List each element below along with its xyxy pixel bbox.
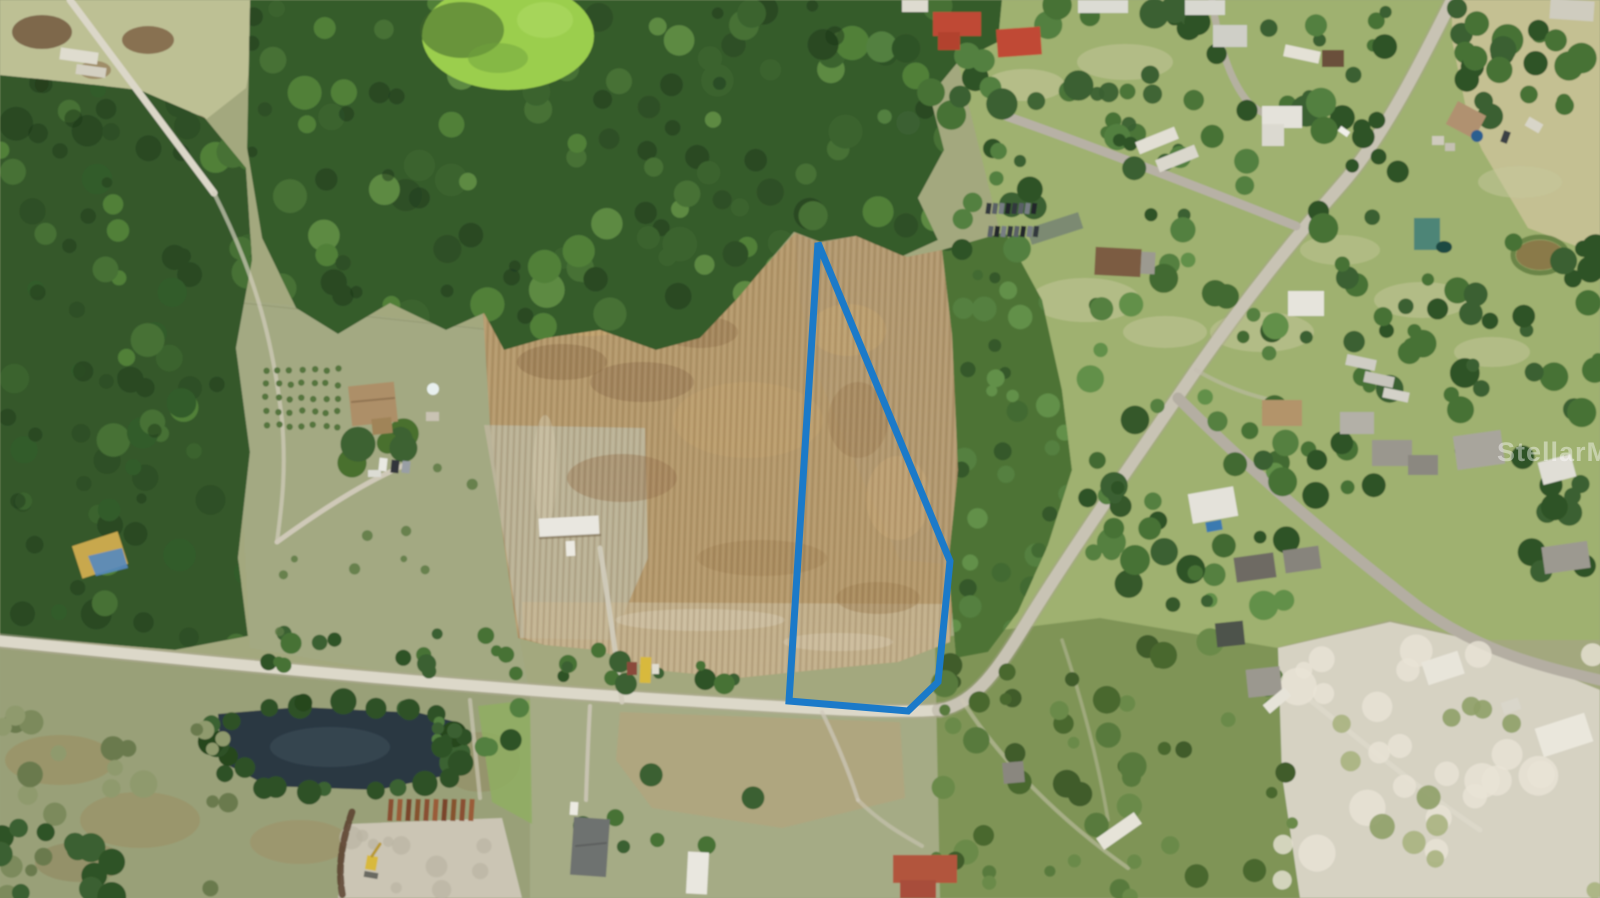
12: [1422, 273, 1434, 285]
buildings: [566, 541, 576, 556]
75: [0, 159, 26, 185]
42: [1077, 365, 1104, 392]
ponds: [412, 771, 437, 796]
6: [341, 427, 376, 462]
buildings: [1002, 761, 1025, 784]
12: [1201, 595, 1213, 607]
75: [117, 368, 136, 387]
14: [972, 49, 995, 72]
10: [1308, 213, 1338, 243]
25: [1519, 756, 1559, 796]
10: [1374, 307, 1393, 326]
12: [714, 673, 735, 694]
75: [97, 423, 131, 457]
10: [952, 239, 973, 260]
75: [28, 428, 42, 442]
10: [1306, 88, 1336, 118]
10: [1380, 6, 1392, 18]
buildings: [426, 412, 439, 421]
buildings: [390, 460, 399, 474]
10: [476, 838, 491, 853]
7: [742, 786, 765, 809]
12: [1512, 305, 1535, 328]
75: [209, 377, 225, 393]
14: [1170, 217, 1195, 242]
120: [583, 267, 607, 291]
25: [206, 795, 219, 808]
25: [1368, 742, 1390, 764]
25: [1435, 762, 1460, 787]
12: [562, 661, 573, 672]
18: [133, 612, 154, 633]
45: [960, 362, 975, 377]
42: [1273, 590, 1294, 611]
10: [1398, 341, 1421, 364]
55: [1221, 712, 1236, 727]
10: [426, 856, 448, 878]
10: [990, 143, 1007, 160]
75: [69, 302, 85, 318]
55: [1050, 701, 1069, 720]
red-roof-house: [996, 26, 1042, 57]
12: [1138, 517, 1161, 540]
south-scrub: [286, 424, 292, 430]
14: [986, 88, 1017, 119]
south-scrub: [324, 396, 330, 402]
10: [510, 698, 530, 718]
south-scrub: [310, 422, 316, 428]
42: [1089, 452, 1106, 469]
55: [1119, 752, 1147, 780]
12: [1462, 697, 1481, 716]
10: [1017, 177, 1043, 203]
55: [1119, 695, 1136, 712]
25: [1309, 646, 1335, 672]
south-scrub: [287, 396, 293, 402]
55: [1286, 817, 1298, 829]
18: [70, 580, 85, 595]
south-scrub: [276, 394, 282, 400]
buildings: [1432, 136, 1444, 145]
25: [807, 0, 819, 12]
12: [1340, 751, 1360, 771]
14: [1235, 176, 1254, 195]
55: [963, 727, 990, 754]
75: [99, 374, 114, 389]
12: [1402, 831, 1425, 854]
buildings: [1340, 412, 1374, 434]
pool: [1471, 130, 1483, 142]
120: [713, 190, 732, 209]
14: [917, 78, 945, 106]
12: [1505, 233, 1523, 251]
12: [615, 673, 637, 695]
16: [1545, 29, 1567, 51]
42: [1214, 284, 1239, 309]
25: [1393, 775, 1416, 798]
base-ground: [935, 618, 1300, 898]
ponds: [253, 778, 275, 800]
ponds: [270, 727, 390, 767]
120: [593, 297, 626, 330]
42: [1262, 346, 1277, 361]
45: [1036, 393, 1060, 417]
120: [697, 161, 720, 184]
12: [1341, 480, 1355, 494]
55: [932, 776, 955, 799]
10: [475, 737, 495, 757]
10: [1371, 149, 1387, 165]
75: [131, 323, 165, 357]
75: [162, 245, 187, 270]
18: [80, 208, 96, 224]
25: [713, 77, 726, 90]
25: [665, 120, 681, 136]
120: [331, 79, 357, 105]
75: [0, 364, 29, 393]
18: [148, 424, 162, 438]
terrain-scene: [0, 0, 1600, 898]
10: [1465, 11, 1490, 36]
buildings: [1372, 440, 1412, 466]
18: [52, 143, 68, 159]
12: [1575, 290, 1600, 316]
16: [417, 654, 436, 673]
14: [892, 34, 921, 63]
42: [1262, 313, 1289, 340]
120: [374, 20, 394, 40]
aerial-photo-canvas: StellarMLS: [0, 0, 1600, 898]
120: [315, 168, 337, 190]
18: [64, 109, 82, 127]
12: [1188, 565, 1203, 580]
buildings: [1185, 0, 1225, 15]
south-scrub: [300, 367, 306, 373]
16: [509, 667, 523, 681]
buildings: [686, 851, 709, 894]
120: [530, 313, 557, 340]
10: [1260, 19, 1278, 37]
10: [1387, 161, 1409, 183]
buildings: [1549, 0, 1594, 22]
10: [500, 729, 522, 751]
45: [1042, 506, 1057, 521]
25: [5, 706, 25, 726]
120: [258, 102, 272, 116]
12: [1268, 467, 1297, 496]
12: [1063, 70, 1093, 100]
buildings: [1094, 247, 1141, 277]
buildings: [1436, 241, 1452, 253]
18: [28, 123, 48, 143]
55: [1068, 737, 1080, 749]
75: [51, 604, 67, 620]
42: [1197, 389, 1213, 405]
14: [1123, 137, 1137, 151]
14: [896, 111, 919, 134]
120: [314, 17, 336, 39]
south-scrub: [334, 424, 340, 430]
12: [1254, 531, 1267, 544]
south-scrub: [312, 408, 318, 414]
watermark-text: StellarMLS: [1497, 437, 1600, 467]
aerial-property-photo: StellarMLS: [0, 0, 1600, 898]
12: [1120, 545, 1150, 575]
10: [1143, 85, 1162, 104]
25: [517, 308, 533, 324]
10: [349, 563, 360, 574]
25: [247, 147, 258, 158]
10: [1300, 331, 1313, 344]
8: [1541, 493, 1568, 520]
75: [125, 459, 141, 475]
42: [1093, 343, 1107, 357]
25: [215, 731, 230, 746]
45: [988, 339, 1001, 352]
25: [1492, 739, 1523, 770]
120: [528, 250, 561, 283]
10: [447, 723, 462, 738]
12: [696, 661, 706, 671]
12: [1332, 715, 1350, 733]
55: [1185, 864, 1209, 888]
42: [1247, 308, 1261, 322]
16: [1474, 92, 1493, 111]
45: [1007, 401, 1029, 423]
75: [179, 627, 199, 647]
10: [472, 863, 488, 879]
buildings: [427, 383, 439, 395]
42: [1121, 406, 1150, 435]
75: [26, 536, 44, 554]
25: [119, 740, 136, 757]
ponds: [365, 698, 386, 719]
12: [1550, 247, 1577, 274]
12: [1426, 814, 1448, 836]
55: [1068, 782, 1093, 807]
75: [167, 388, 197, 418]
45: [973, 270, 984, 281]
42: [1237, 331, 1250, 344]
25: [18, 785, 38, 805]
120: [863, 196, 894, 227]
18: [136, 493, 146, 503]
ponds: [330, 688, 356, 714]
10: [1345, 67, 1361, 83]
120: [433, 235, 461, 263]
25: [219, 793, 239, 813]
75: [186, 443, 201, 458]
south-scrub: [335, 396, 341, 402]
45: [959, 579, 977, 597]
25: [503, 269, 520, 286]
120: [568, 134, 587, 153]
120: [591, 208, 622, 239]
10: [1120, 84, 1136, 100]
42: [1090, 297, 1113, 320]
12: [1442, 709, 1460, 727]
75: [107, 219, 129, 241]
16: [273, 657, 284, 668]
120: [273, 179, 307, 213]
south-scrub: [263, 368, 269, 374]
12: [1307, 450, 1328, 471]
25: [130, 770, 158, 798]
16: [1520, 86, 1538, 104]
120: [796, 164, 817, 185]
buildings: [1445, 143, 1455, 151]
42: [1207, 411, 1227, 431]
12: [1540, 362, 1569, 391]
ground-texture: [1123, 316, 1207, 348]
120: [260, 47, 287, 74]
buildings: [401, 461, 410, 474]
10: [279, 570, 288, 579]
75: [102, 123, 120, 141]
buildings: [900, 880, 936, 898]
12: [1370, 814, 1395, 839]
10: [1398, 299, 1414, 315]
7: [698, 836, 716, 854]
120: [470, 287, 504, 321]
120: [731, 198, 749, 216]
25: [202, 880, 218, 896]
10: [433, 463, 442, 472]
12: [1302, 482, 1329, 509]
45: [962, 555, 978, 571]
buildings: [371, 417, 393, 435]
ponds: [468, 43, 528, 73]
12: [1427, 850, 1445, 868]
42: [1203, 563, 1226, 586]
55: [1065, 672, 1079, 686]
25: [25, 864, 37, 876]
buildings: [1246, 666, 1283, 697]
12: [1111, 481, 1124, 494]
55: [999, 663, 1016, 680]
55: [1158, 742, 1171, 755]
120: [737, 0, 766, 28]
25: [382, 169, 394, 181]
45: [1045, 440, 1060, 455]
12: [1466, 359, 1479, 372]
ponds: [234, 757, 255, 778]
75: [76, 476, 92, 492]
18: [96, 99, 117, 120]
ponds: [297, 780, 322, 805]
25: [102, 779, 121, 798]
120: [644, 158, 663, 177]
south-scrub: [264, 422, 270, 428]
south-scrub: [286, 367, 292, 373]
south-scrub: [334, 408, 340, 414]
25: [660, 73, 683, 96]
25: [51, 745, 67, 761]
55: [1093, 686, 1121, 714]
12: [1482, 313, 1499, 330]
75: [136, 378, 155, 397]
25: [1396, 658, 1419, 681]
south-scrub: [335, 365, 341, 371]
55: [1243, 859, 1266, 882]
buildings: [1215, 621, 1245, 648]
buildings: [378, 458, 387, 472]
7: [617, 840, 630, 853]
45: [997, 466, 1014, 483]
42: [1119, 292, 1143, 316]
south-scrub: [324, 368, 330, 374]
25: [17, 762, 43, 788]
ponds: [223, 712, 241, 730]
south-scrub: [263, 408, 269, 414]
120: [459, 173, 477, 191]
45: [1006, 390, 1018, 402]
120: [321, 269, 347, 295]
55: [1161, 836, 1179, 854]
120: [315, 244, 338, 267]
12: [1525, 363, 1544, 382]
18: [124, 522, 148, 546]
75: [103, 194, 123, 214]
10: [1368, 112, 1385, 129]
10: [391, 882, 402, 893]
14: [1144, 208, 1157, 221]
10: [362, 530, 373, 541]
10: [467, 479, 478, 490]
120: [723, 241, 749, 267]
75: [35, 223, 57, 245]
left-forest: [0, 67, 266, 656]
10: [1372, 34, 1397, 59]
buildings: [1262, 124, 1284, 146]
75: [163, 539, 195, 571]
ground-texture: [12, 15, 72, 49]
16: [327, 633, 341, 647]
6: [389, 434, 417, 462]
12: [1078, 488, 1097, 507]
south-scrub: [335, 382, 341, 388]
25: [191, 723, 204, 736]
ponds: [216, 765, 233, 782]
55: [982, 876, 996, 890]
25: [350, 286, 362, 298]
12: [1502, 714, 1521, 733]
25: [1388, 734, 1412, 758]
120: [268, 0, 285, 17]
buildings: [1213, 25, 1247, 47]
south-scrub: [324, 423, 330, 429]
55: [1150, 642, 1177, 669]
75: [0, 107, 33, 141]
25: [1296, 662, 1313, 679]
buildings: [902, 0, 928, 12]
75: [118, 349, 135, 366]
16: [432, 628, 443, 639]
buildings: [570, 802, 579, 816]
12: [1139, 0, 1169, 29]
25: [107, 760, 123, 776]
ground-texture: [1478, 166, 1562, 198]
10: [1236, 100, 1257, 121]
south-scrub: [298, 379, 304, 385]
ponds: [440, 768, 460, 788]
25: [43, 803, 66, 826]
16: [395, 650, 411, 666]
16: [498, 647, 514, 663]
120: [760, 59, 781, 80]
red-tile-house: [893, 855, 957, 883]
55: [939, 704, 950, 715]
